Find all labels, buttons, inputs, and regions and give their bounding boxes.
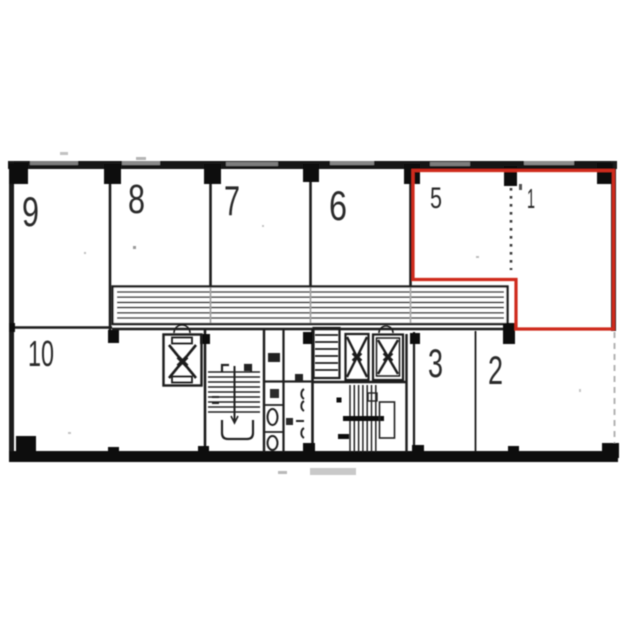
- svg-text:7: 7: [224, 177, 240, 224]
- svg-text:2: 2: [488, 349, 503, 393]
- svg-text:9: 9: [22, 188, 39, 235]
- svg-text:1: 1: [527, 183, 535, 214]
- svg-text:10: 10: [28, 333, 54, 374]
- svg-text:8: 8: [128, 176, 145, 222]
- svg-text:3: 3: [428, 342, 443, 386]
- svg-text:6: 6: [329, 182, 347, 229]
- svg-text:5: 5: [430, 182, 442, 215]
